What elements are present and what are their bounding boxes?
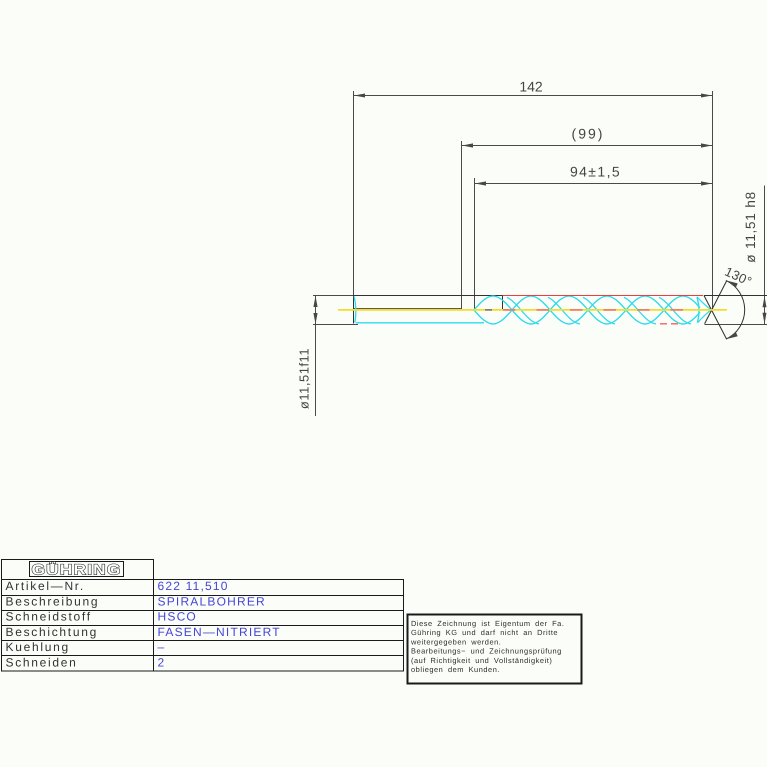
svg-text:Schneidstoff: Schneidstoff	[6, 610, 92, 624]
svg-text:2: 2	[158, 656, 166, 670]
svg-text:(auf Richtigkeit und Vollständ: (auf Richtigkeit und Vollständigkeit)	[411, 656, 552, 665]
svg-text:(99): (99)	[572, 126, 605, 142]
svg-text:Beschreibung: Beschreibung	[6, 595, 100, 609]
svg-text:Artikel—Nr.: Artikel—Nr.	[6, 579, 85, 593]
svg-text:ø11,51f11: ø11,51f11	[297, 348, 312, 409]
svg-text:HSCO: HSCO	[158, 610, 197, 624]
svg-text:obliegen dem Kunden.: obliegen dem Kunden.	[411, 665, 500, 674]
svg-text:622 11,510: 622 11,510	[158, 579, 229, 593]
svg-text:Gühring KG und darf nicht an D: Gühring KG und darf nicht an Dritte	[411, 628, 558, 637]
svg-text:SPIRALBOHRER: SPIRALBOHRER	[158, 595, 266, 609]
svg-text:Bearbeitungs− und Zeichnungspr: Bearbeitungs− und Zeichnungsprüfung	[411, 647, 562, 656]
svg-text:FASEN—NITRIERT: FASEN—NITRIERT	[158, 625, 281, 639]
svg-text:–: –	[158, 640, 166, 654]
svg-text:GÜHRING: GÜHRING	[32, 562, 122, 579]
svg-text:142: 142	[519, 79, 543, 95]
svg-text:Kuehlung: Kuehlung	[6, 640, 70, 654]
svg-text:Diese Zeichnung ist Eigentum d: Diese Zeichnung ist Eigentum der Fa.	[411, 619, 564, 628]
svg-text:94±1,5: 94±1,5	[570, 164, 621, 180]
svg-text:Schneiden: Schneiden	[6, 656, 78, 670]
svg-text:ø 11,51 h8: ø 11,51 h8	[743, 191, 758, 263]
svg-text:weitergegeben werden.: weitergegeben werden.	[410, 637, 501, 646]
svg-text:Beschichtung: Beschichtung	[6, 625, 98, 639]
